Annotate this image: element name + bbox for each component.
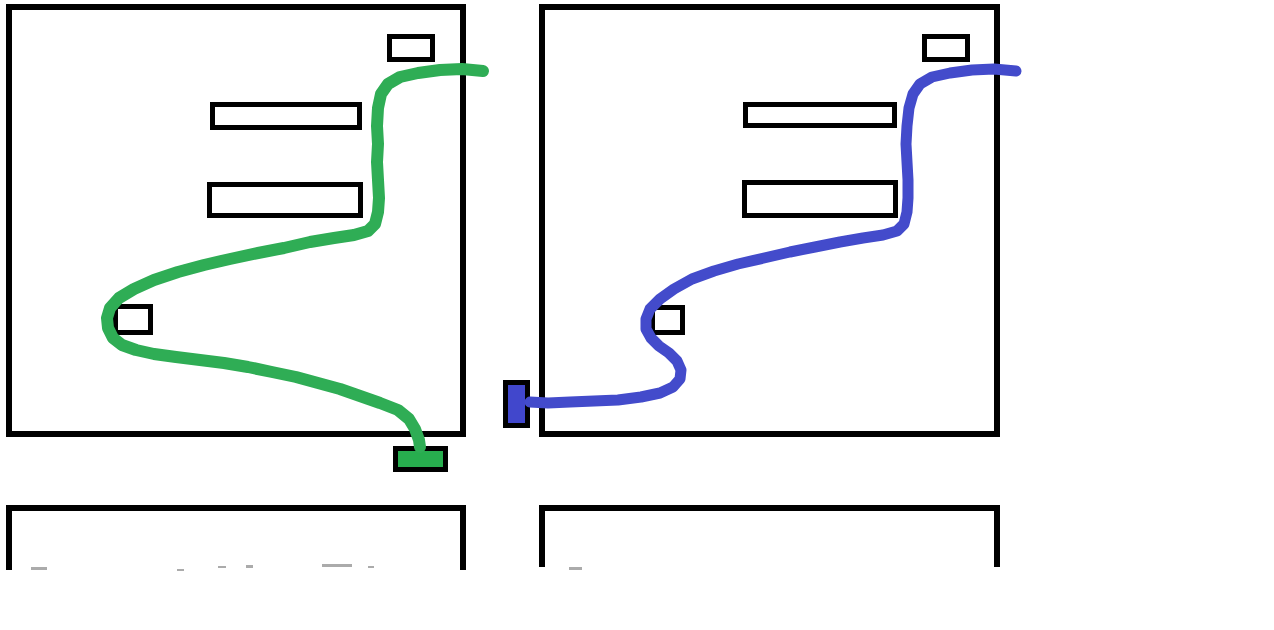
left-menu-bar-2 xyxy=(210,185,361,216)
cropped-text-mark-5 xyxy=(368,566,374,568)
left-top-right-box xyxy=(390,37,433,60)
left-small-square xyxy=(116,307,151,333)
cropped-text-mark-4 xyxy=(322,564,352,567)
right-menu-bar-2 xyxy=(745,183,896,216)
blue-cursor-path xyxy=(530,69,1016,403)
right-top-right-box xyxy=(925,37,968,60)
left-lower-cropped-box xyxy=(9,508,463,570)
right-menu-bar-1 xyxy=(746,105,895,126)
drawing-canvas xyxy=(0,0,1274,630)
cropped-text-mark-6 xyxy=(569,567,582,570)
left-menu-bar-1 xyxy=(213,105,360,128)
right-lower-cropped-box xyxy=(542,508,997,567)
drawing-stage xyxy=(0,0,1274,630)
cropped-text-mark-2 xyxy=(218,566,226,568)
blue-end-marker xyxy=(506,383,528,426)
cropped-text-mark-3 xyxy=(246,565,253,568)
cropped-text-mark-0 xyxy=(31,567,47,570)
right-screen-panel-outline xyxy=(542,7,997,434)
right-small-square xyxy=(653,308,683,333)
cropped-text-mark-1 xyxy=(177,569,184,571)
